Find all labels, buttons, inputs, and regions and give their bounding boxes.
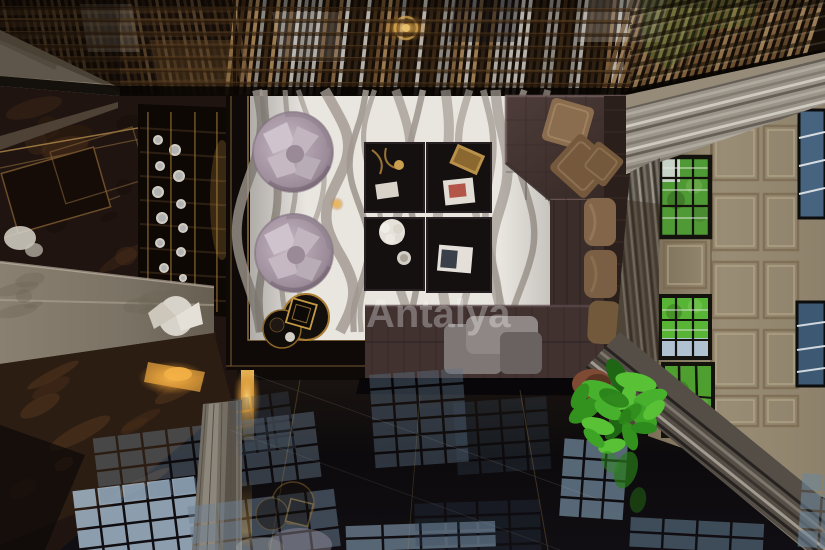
svg-text:Antalya: Antalya xyxy=(366,292,511,336)
